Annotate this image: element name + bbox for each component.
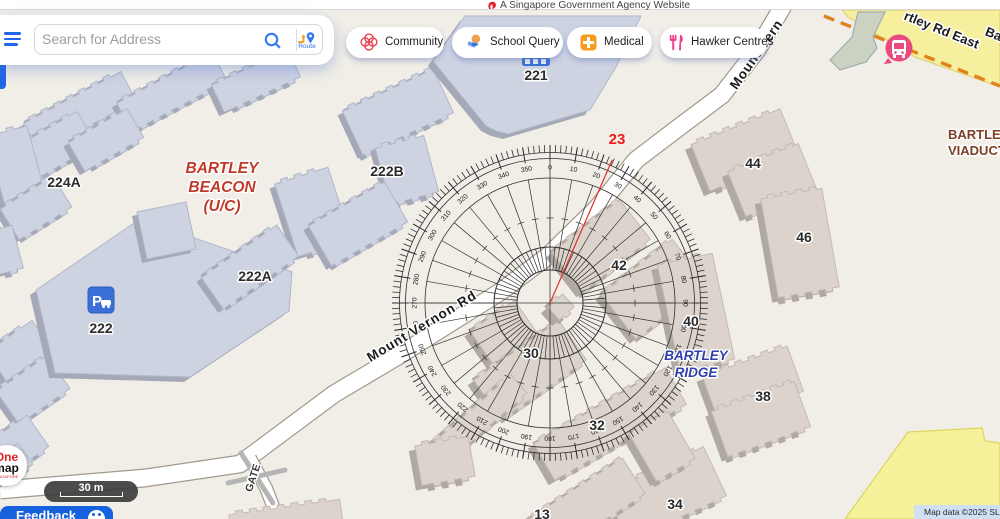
svg-text:80: 80: [679, 275, 687, 284]
svg-text:BARTLEY: BARTLEY: [948, 127, 1000, 142]
svg-text:13: 13: [534, 506, 550, 519]
svg-text:180: 180: [544, 435, 556, 442]
svg-text:44: 44: [745, 155, 761, 171]
svg-text:46: 46: [796, 229, 812, 245]
svg-text:BARTLEY: BARTLEY: [664, 348, 730, 363]
svg-text:222A: 222A: [238, 268, 271, 284]
svg-text:P: P: [92, 293, 102, 310]
svg-text:VIADUCT: VIADUCT: [948, 143, 1000, 158]
svg-text:RIDGE: RIDGE: [675, 365, 719, 380]
svg-text:40: 40: [683, 313, 699, 329]
svg-text:224A: 224A: [47, 174, 80, 190]
svg-text:BEACON: BEACON: [188, 179, 256, 196]
svg-text:30: 30: [523, 345, 539, 361]
svg-text:38: 38: [755, 388, 771, 404]
svg-text:42: 42: [611, 257, 627, 273]
svg-text:BARTLEY: BARTLEY: [186, 160, 261, 177]
svg-text:0: 0: [548, 164, 552, 171]
svg-text:32: 32: [589, 417, 605, 433]
svg-text:90: 90: [682, 299, 689, 307]
svg-text:10: 10: [569, 166, 578, 174]
svg-text:222B: 222B: [370, 163, 403, 179]
svg-text:23: 23: [609, 131, 626, 148]
svg-text:(U/C): (U/C): [203, 198, 240, 215]
svg-text:222: 222: [89, 320, 113, 336]
svg-text:221: 221: [524, 67, 548, 83]
svg-text:34: 34: [667, 496, 683, 512]
svg-text:270: 270: [411, 297, 418, 309]
